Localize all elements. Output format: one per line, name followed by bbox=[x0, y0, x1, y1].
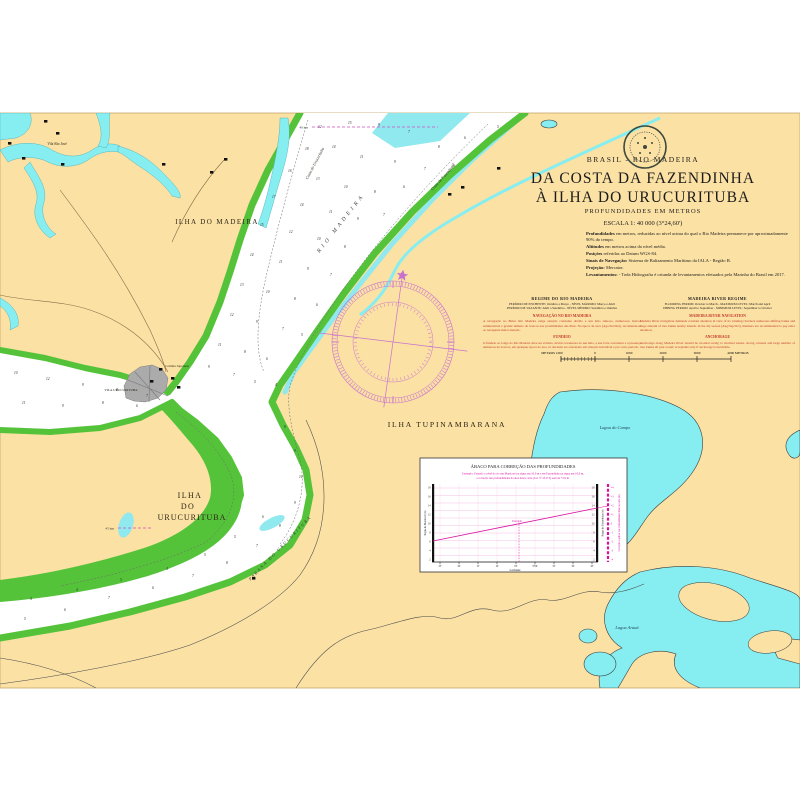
inset-x-tick: 15' bbox=[476, 565, 480, 568]
chart-note: Profundidades em metros, reduzidas ao ní… bbox=[586, 231, 792, 243]
scale-bar-label: 0 bbox=[594, 351, 596, 355]
inset-left-axis bbox=[432, 484, 434, 562]
depth-sounding: 4 bbox=[76, 588, 78, 592]
scale-bar-label: 2000 bbox=[660, 351, 667, 355]
column-heading: REGIME DO RIO MADEIRA bbox=[483, 296, 641, 301]
building-symbol bbox=[8, 142, 11, 145]
column-heading: MADEIRA RIVER REGIME bbox=[640, 296, 795, 301]
building-symbol bbox=[44, 120, 47, 123]
depth-sounding: 12 bbox=[318, 125, 322, 129]
chart-subtitle: PROFUNDIDADES EM METROS bbox=[493, 208, 793, 215]
building-symbol bbox=[177, 386, 180, 389]
depth-sounding: 17 bbox=[272, 195, 276, 199]
depth-sounding: 13 bbox=[316, 177, 320, 181]
depth-sounding: 6 bbox=[403, 185, 405, 189]
inset-right-axis-label: Régua de Fazendinha (m) bbox=[602, 510, 605, 537]
building-symbol bbox=[162, 163, 165, 166]
regime-column-pt: REGIME DO RIO MADEIRA PERÍODO DE ENCHENT… bbox=[483, 296, 641, 350]
depth-sounding: 4 bbox=[166, 567, 168, 571]
inset-x-tick: 3°00' bbox=[532, 565, 538, 568]
depth-sounding: 7 bbox=[408, 130, 410, 134]
depth-sounding: 10 bbox=[344, 185, 348, 189]
depth-sounding: 8 bbox=[374, 190, 376, 194]
depth-sounding: 18 bbox=[305, 147, 309, 151]
depth-sounding: 7 bbox=[233, 373, 235, 377]
depth-sounding: 9 bbox=[256, 320, 258, 324]
depth-sounding: 8 bbox=[279, 524, 281, 528]
depth-sounding: 5 bbox=[204, 553, 206, 557]
building-symbol bbox=[150, 380, 153, 383]
depth-sounding: 9 bbox=[82, 383, 84, 387]
chart-note: Levantamentos: - Toda Hidrografia é oriu… bbox=[586, 272, 792, 278]
depth-sounding: 14 bbox=[300, 203, 304, 207]
depth-sounding: 4 bbox=[30, 597, 32, 601]
inset-x-tick: 10' bbox=[495, 565, 499, 568]
inset-x-tick: 50' bbox=[571, 565, 575, 568]
label-colonia-japonesa: Colônia Japonesa bbox=[165, 364, 189, 368]
depth-sounding: 16 bbox=[288, 169, 292, 173]
depth-sounding: 13 bbox=[240, 283, 244, 287]
depth-sounding: 11 bbox=[22, 401, 26, 405]
label-lagoa-do-campo: Lagoa do Campo bbox=[599, 425, 631, 430]
depth-sounding: 12 bbox=[289, 230, 293, 234]
depth-sounding: 9 bbox=[208, 365, 210, 369]
anchorage-warning-heading: ANCHORAGE bbox=[640, 335, 795, 340]
chart-note: Sinais de Navegação: Sistema de Balizame… bbox=[586, 258, 792, 264]
depth-sounding: 8 bbox=[438, 145, 440, 149]
depth-sounding: 7 bbox=[192, 574, 194, 578]
depth-sounding: 8 bbox=[284, 425, 286, 429]
depth-sounding: 10 bbox=[317, 237, 321, 241]
inset-x-tick: 55' bbox=[552, 565, 556, 568]
navigation-warning-heading: NAVEGAÇÃO NO RIO MADEIRA bbox=[483, 314, 641, 319]
label-lagoa-araua: Lagoa Arauá bbox=[614, 625, 639, 630]
km-marker-label: 40 km bbox=[299, 126, 308, 130]
chart-scale-statement: ESCALA 1: 40 000 (3°24,60') bbox=[493, 220, 793, 227]
depth-sounding: 7 bbox=[108, 596, 110, 600]
depth-sounding: 7 bbox=[424, 167, 426, 171]
depth-sounding: 7 bbox=[146, 394, 148, 398]
regime-line: EBBING PERIOD: April to September - MINI… bbox=[640, 306, 795, 310]
depth-sounding: 11 bbox=[279, 260, 283, 264]
depth-sounding: 6 bbox=[266, 357, 268, 361]
label-ilha-urucurituba: DO bbox=[181, 502, 195, 511]
label-ilha-tupinambarana: ILHA TUPINAMBARANA bbox=[388, 420, 507, 429]
depth-sounding: 6 bbox=[64, 608, 66, 612]
chart-title-line1: DA COSTA DA FAZENDINHA bbox=[493, 170, 793, 188]
navigation-warning-heading: MADEIRA RIVER NAVIGATION bbox=[640, 314, 795, 319]
depth-sounding: 11 bbox=[329, 210, 333, 214]
label-ilha-do-madeira: ILHA DO MADEIRA bbox=[175, 218, 259, 226]
depth-sounding: 5 bbox=[497, 125, 499, 129]
building-symbol bbox=[56, 132, 59, 135]
inset-right-axis bbox=[596, 484, 598, 562]
anchorage-warning-heading: FUNDEIO bbox=[483, 335, 641, 340]
depth-sounding: 9 bbox=[378, 123, 380, 127]
depth-sounding: 7 bbox=[256, 544, 258, 548]
scale-bar-label: 1000 bbox=[626, 351, 633, 355]
chart-map: 40 km 45 km 12159786518141197516131086 bbox=[0, 0, 800, 800]
depth-sounding: 7 bbox=[330, 273, 332, 277]
chart-notes-block: Profundidades em metros, reduzidas ao ní… bbox=[586, 231, 792, 279]
regime-line: PERÍODO DE VAZANTE: Abril a Setembro - N… bbox=[483, 306, 641, 310]
depth-sounding: 8 bbox=[344, 245, 346, 249]
building-symbol bbox=[210, 171, 213, 174]
depth-sounding: 8 bbox=[226, 561, 228, 565]
depth-sounding: 7 bbox=[282, 327, 284, 331]
label-vila-urucurituba: VILA URUCURITUBA bbox=[104, 388, 138, 392]
depth-sounding: 14 bbox=[250, 253, 254, 257]
inset-abaco: ÁBACO PARA CORREÇÃO DAS PROFUNDIDADES Ex… bbox=[420, 458, 627, 572]
label-ilha-urucurituba: ILHA bbox=[178, 491, 203, 500]
depth-sounding: 8 bbox=[244, 350, 246, 354]
depth-sounding: 4 bbox=[275, 383, 277, 387]
inset-title: ÁBACO PARA CORREÇÃO DAS PROFUNDIDADES bbox=[471, 464, 576, 469]
inset-correction-axis-label: Correção a aplicar nas profundidades lid… bbox=[618, 494, 621, 551]
scale-bar-label: 3000 bbox=[694, 351, 701, 355]
inset-x-tick: 20' bbox=[457, 565, 461, 568]
km-marker-label: 45 km bbox=[105, 527, 114, 531]
inset-x-tick: 25' bbox=[438, 565, 442, 568]
depth-sounding: 8 bbox=[102, 401, 104, 405]
scale-bar-label: 4000 METROS bbox=[727, 351, 748, 355]
inset-left-axis-label: Régua de Manicoré (m) bbox=[424, 511, 427, 536]
depth-sounding: 9 bbox=[62, 404, 64, 408]
depth-sounding: 7 bbox=[383, 213, 385, 217]
chart-title-line2: À ILHA DO URUCURITUBA bbox=[493, 189, 793, 207]
depth-sounding: 9 bbox=[294, 501, 296, 505]
depth-sounding: 5 bbox=[120, 578, 122, 582]
building-symbol bbox=[448, 193, 451, 196]
inset-x-tick: 45' bbox=[590, 565, 594, 568]
depth-sounding: 5 bbox=[301, 333, 303, 337]
depth-sounding: 10 bbox=[299, 475, 303, 479]
depth-sounding: 9 bbox=[294, 449, 296, 453]
depth-sounding: 15 bbox=[260, 223, 264, 227]
regime-column-en: MADEIRA RIVER REGIME FLOODING PERIOD: Oc… bbox=[640, 296, 795, 350]
building-symbol bbox=[61, 163, 64, 166]
depth-sounding: 5 bbox=[24, 617, 26, 621]
anchorage-warning-text: Anchorage along Madeira River should be … bbox=[640, 341, 795, 350]
inset-x-axis-label: Latitude bbox=[510, 568, 522, 572]
inset-example-line: a correção nas profundidades da área des… bbox=[476, 476, 570, 480]
depth-sounding: 12 bbox=[46, 377, 50, 381]
depth-sounding: 15 bbox=[348, 121, 352, 125]
label-vila-sao-jose: Vila São José bbox=[47, 142, 67, 146]
depth-sounding: 12 bbox=[230, 313, 234, 317]
depth-sounding: 6 bbox=[136, 404, 138, 408]
depth-sounding: 8 bbox=[294, 297, 296, 301]
depth-sounding: 9 bbox=[357, 217, 359, 221]
nautical-chart-sheet: 40 km 45 km 12159786518141197516131086 bbox=[0, 0, 800, 800]
inset-example-annotation: Exemplo bbox=[511, 519, 523, 523]
chart-note: Altitudes em metros acima do nível médio… bbox=[586, 244, 792, 250]
depth-sounding: 9 bbox=[394, 160, 396, 164]
depth-sounding: 10 bbox=[14, 371, 18, 375]
depth-sounding: 6 bbox=[464, 136, 466, 140]
depth-sounding: 11 bbox=[218, 343, 222, 347]
depth-sounding: 9 bbox=[307, 267, 309, 271]
anchorage-warning-text: O fundeio ao longo do Rio Madeira deve s… bbox=[483, 341, 641, 350]
depth-sounding: 14 bbox=[332, 145, 336, 149]
building-symbol bbox=[159, 368, 162, 371]
chart-note: Projeção: Mercator. bbox=[586, 265, 792, 271]
building-symbol bbox=[22, 157, 25, 160]
depth-sounding: 5 bbox=[234, 535, 236, 539]
building-symbol bbox=[461, 186, 464, 189]
inset-x-tick: 05' bbox=[514, 565, 518, 568]
navigation-warning-text: A navegação no Baixo Rio Madeira exige a… bbox=[483, 319, 641, 332]
depth-sounding: 10 bbox=[266, 290, 270, 294]
depth-sounding: 6 bbox=[316, 303, 318, 307]
depth-sounding: 11 bbox=[360, 155, 364, 159]
chart-country-line: BRASIL - RIO MADEIRA bbox=[493, 155, 793, 164]
building-symbol bbox=[224, 158, 227, 161]
depth-sounding: 5 bbox=[254, 380, 256, 384]
building-symbol bbox=[171, 377, 174, 380]
navigation-warning-text: Madeira River navigation demands constan… bbox=[640, 319, 795, 332]
depth-sounding: 6 bbox=[262, 515, 264, 519]
depth-sounding: 6 bbox=[152, 586, 154, 590]
scale-bar-label: METROS 1000 bbox=[541, 351, 563, 355]
chart-note: Posições referidas ao Datum WGS-84. bbox=[586, 251, 792, 257]
label-ilha-urucurituba: URUCURITUBA bbox=[158, 513, 227, 522]
